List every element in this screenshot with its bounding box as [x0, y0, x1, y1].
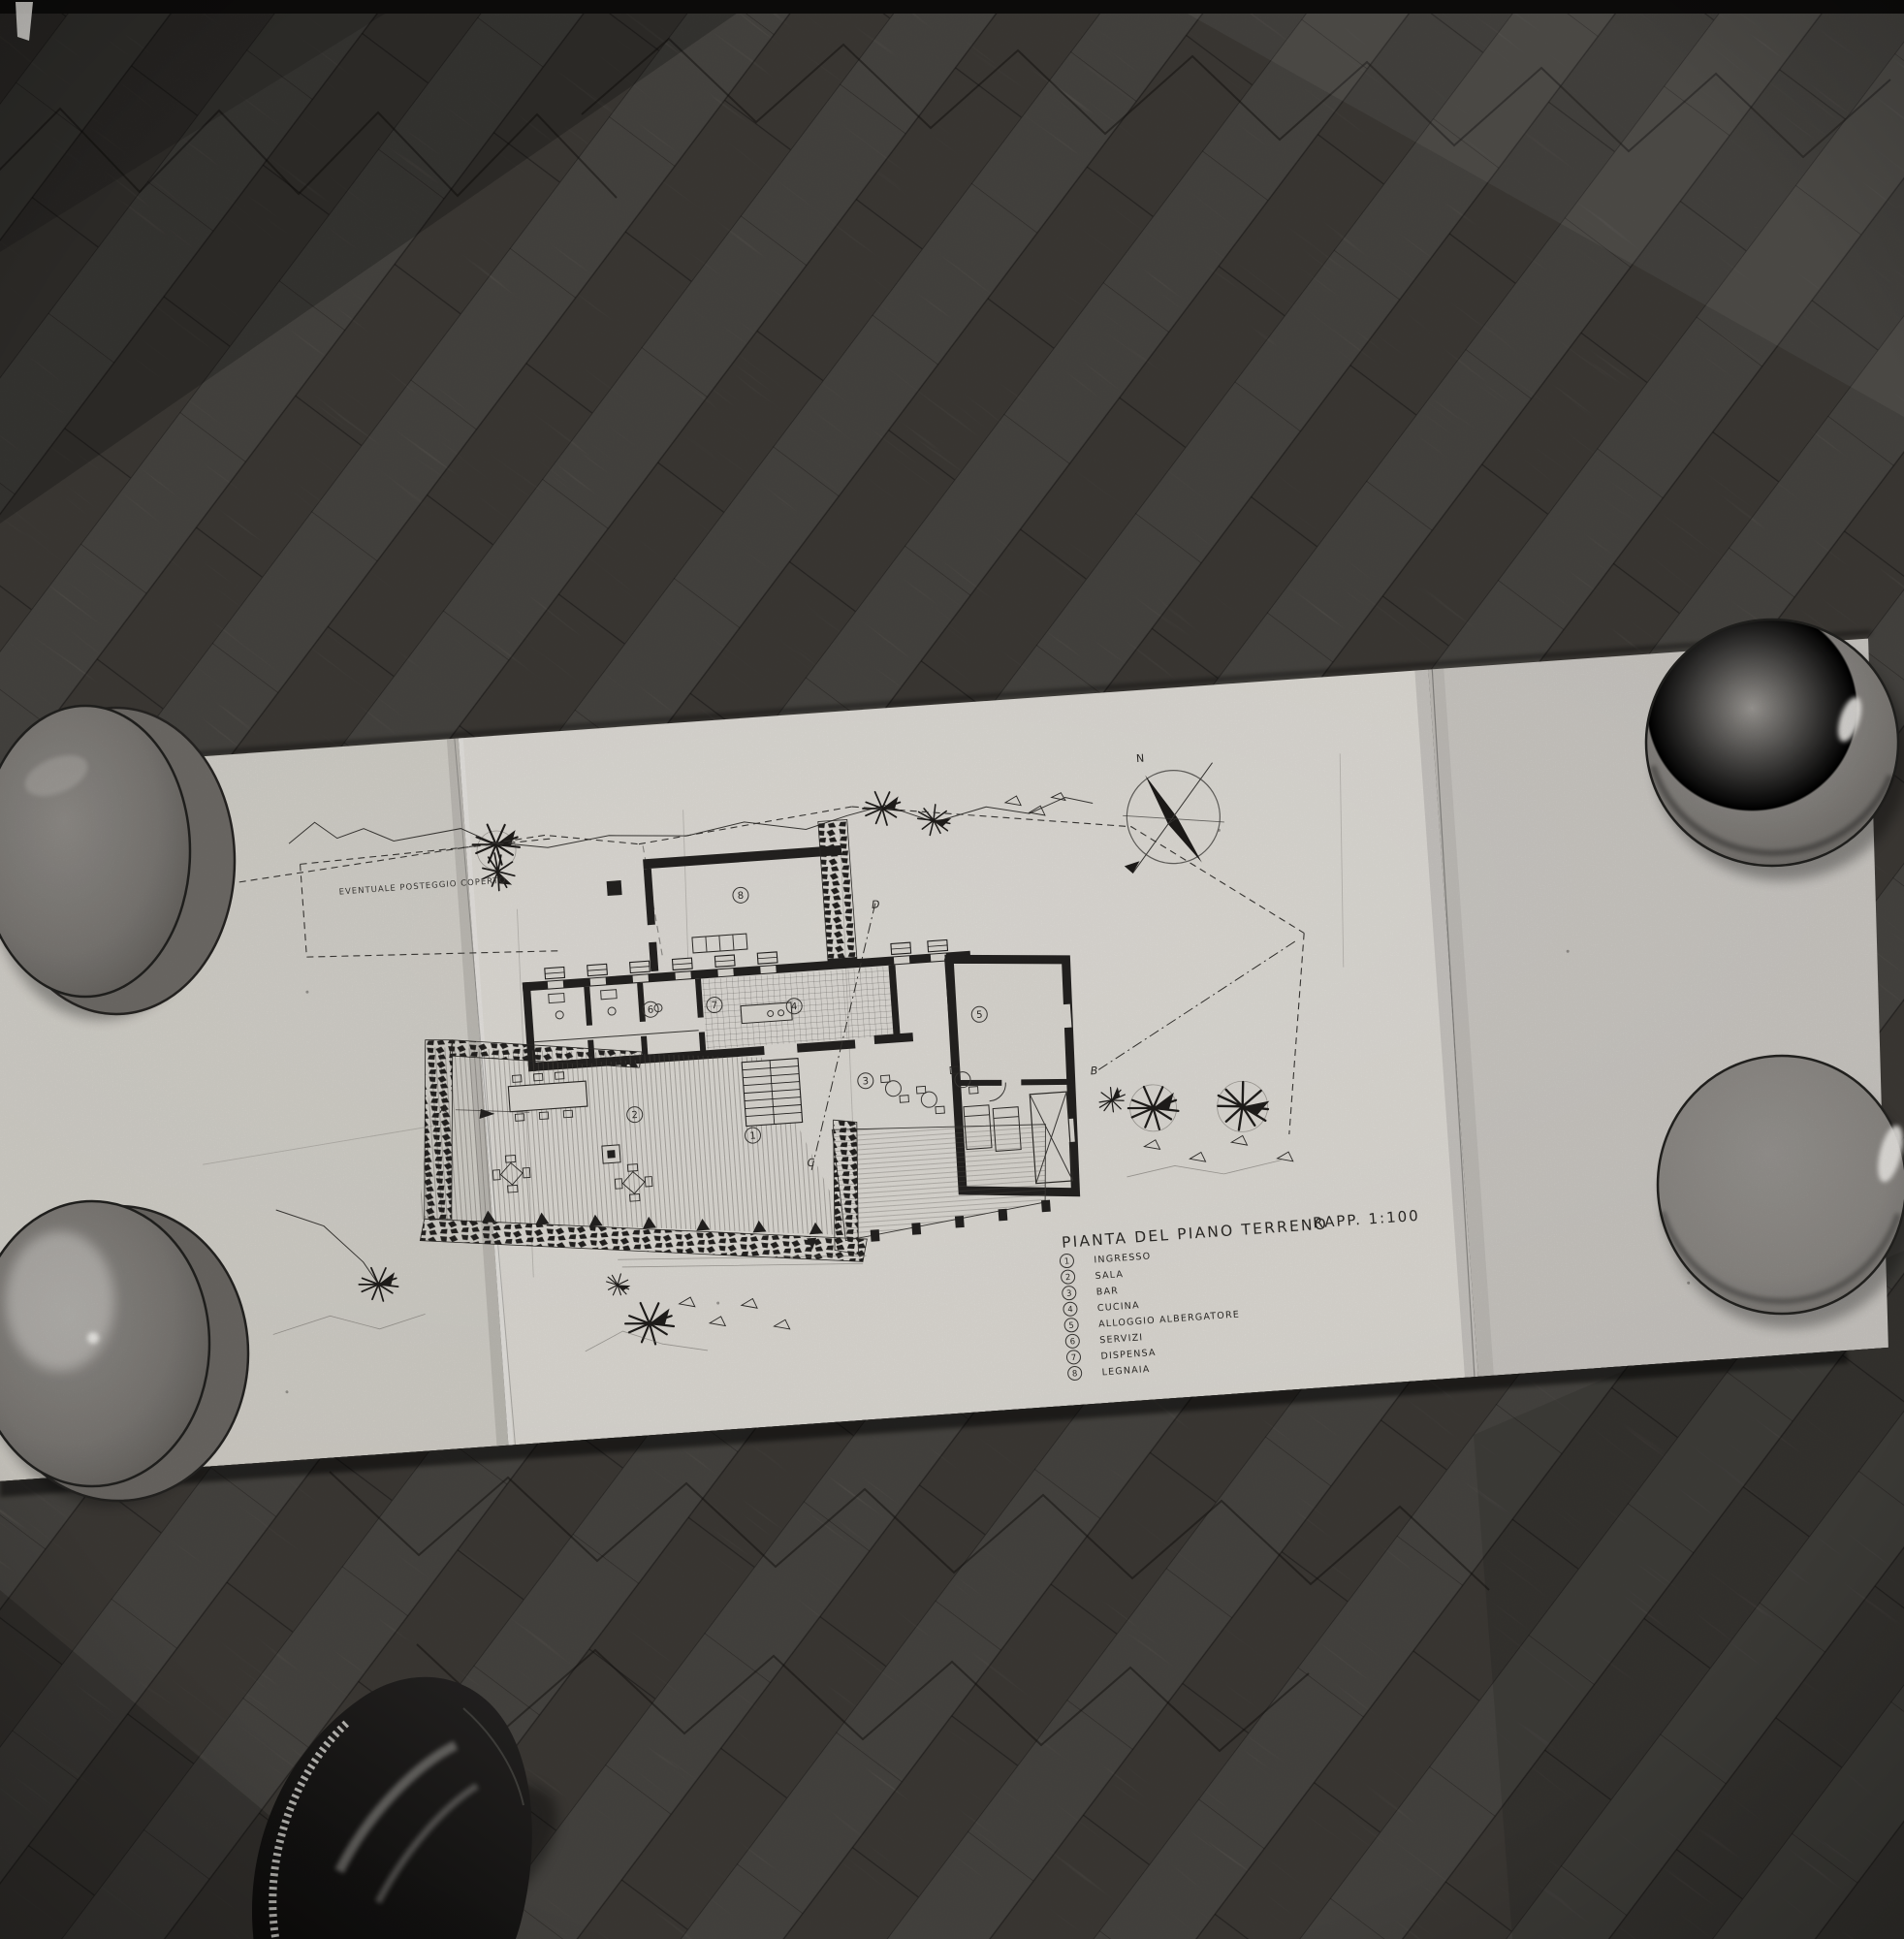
photo-vignette [0, 0, 1904, 1939]
photo-of-floor-plan-on-parquet: N EVENTUALE POSTEGGIO COPERTO [0, 0, 1904, 1939]
